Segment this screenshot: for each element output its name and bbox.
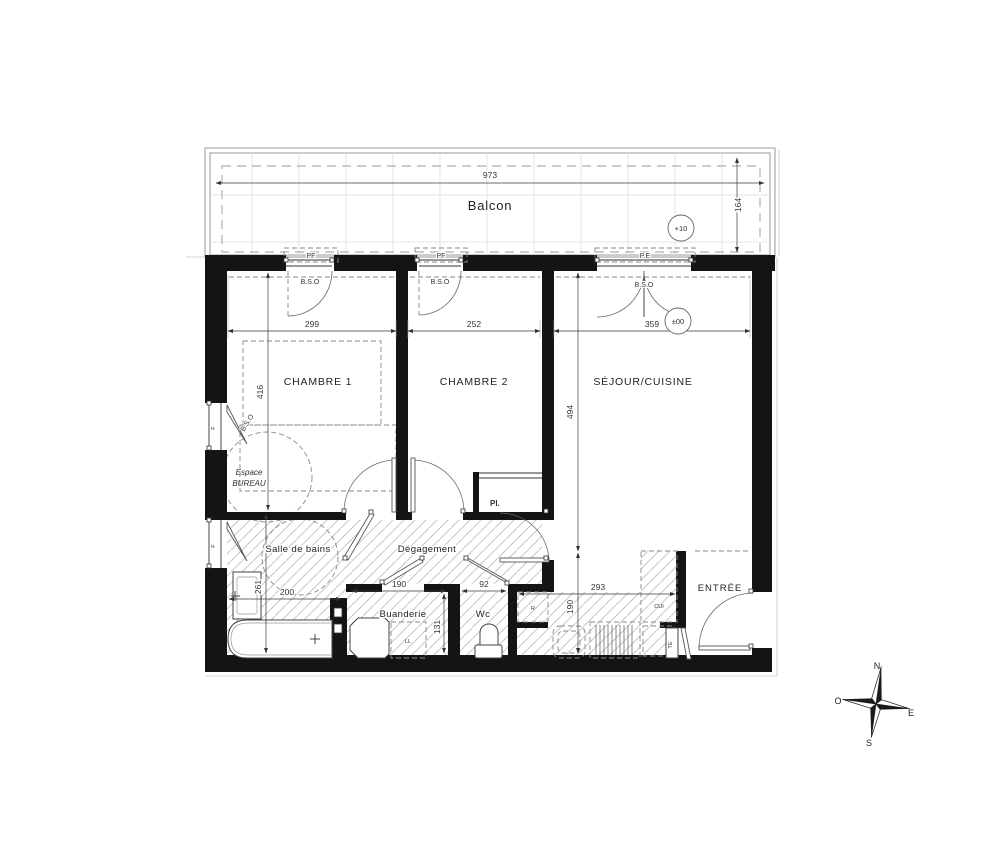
- dim-balcon-largeur: 973: [483, 170, 497, 180]
- degagement-label: Dégagement: [398, 544, 456, 555]
- floor-plan-svg: Balcon 973 164 +10 Espace BUREAU: [0, 0, 1000, 857]
- dim-cuisine-profondeur: 190: [565, 600, 575, 614]
- balcony: Balcon 973 164 +10: [186, 148, 779, 257]
- chambre2-label: CHAMBRE 2: [440, 376, 508, 388]
- wc-label: Wc: [476, 609, 491, 620]
- espace-bureau-circle: [222, 432, 312, 522]
- cuisine-meuble-label: CUI: [654, 604, 664, 610]
- dim-balcon-profondeur: 164: [733, 198, 743, 212]
- dim-sdb-largeur: 200: [280, 587, 294, 597]
- dim-buanderie-largeur: 190: [392, 579, 406, 589]
- compass-south-label: S: [866, 738, 872, 748]
- wall-ch1-ch2: [396, 271, 408, 512]
- level-balcony: +10: [675, 224, 688, 233]
- compass-rose-icon: N O E S: [834, 661, 914, 748]
- wall-cuisine-entree: [676, 551, 686, 622]
- buanderie-label: Buanderie: [380, 609, 427, 620]
- compass-east-label: E: [908, 708, 914, 718]
- compass-north-label: N: [874, 661, 881, 671]
- espace-bureau-label-1: Espace: [236, 468, 263, 477]
- dim-sdb-profondeur: 261: [253, 580, 263, 594]
- floor-plan-page: Balcon 973 164 +10 Espace BUREAU: [0, 0, 1000, 857]
- compass-west-label: O: [834, 696, 841, 706]
- wall-buanderie-wc: [448, 584, 460, 655]
- f2-label: F: [211, 544, 217, 548]
- dim-wc-largeur: 92: [479, 579, 489, 589]
- balcon-label: Balcon: [468, 198, 513, 213]
- closet-jamb: [473, 472, 479, 512]
- bso3-label: B.S.O: [635, 282, 654, 289]
- toilet-bowl: [480, 624, 498, 646]
- f1-label: F: [211, 426, 217, 430]
- te-label: TE: [668, 641, 674, 648]
- fridge-label: R: [531, 606, 535, 612]
- dim-sejour-profondeur: 494: [565, 405, 575, 419]
- wall-ch2-sejour: [542, 271, 554, 512]
- bso4-label: B.S.O: [240, 413, 256, 433]
- sejour-label: SÉJOUR/CUISINE: [593, 375, 692, 388]
- sdb-label: Salle de bains: [265, 544, 330, 555]
- dim-chambre1-profondeur: 416: [255, 385, 265, 399]
- kitchen-column-floor: [641, 551, 676, 592]
- dim-sejour-largeur: 359: [645, 319, 659, 329]
- entree-label: ENTRÉE: [698, 583, 743, 594]
- bso2-label: B.S.O: [431, 279, 450, 286]
- te-door-leaf: [681, 628, 691, 659]
- placard-label: Pl.: [490, 499, 500, 508]
- dim-cuisine-largeur: 293: [591, 582, 605, 592]
- water-heater: [350, 618, 389, 658]
- chambre1-label: CHAMBRE 1: [284, 376, 352, 388]
- pe-label: P.E: [640, 253, 651, 260]
- pf1-label: PF: [307, 253, 316, 260]
- pf2-label: PF: [437, 253, 446, 260]
- lave-linge-label: LL: [405, 639, 411, 645]
- dim-chambre2-largeur: 252: [467, 319, 481, 329]
- dim-chambre1-largeur: 299: [305, 319, 319, 329]
- dim-buanderie-profondeur: 131: [432, 620, 442, 634]
- espace-bureau-label-2: BUREAU: [232, 479, 266, 488]
- toilet-tank: [475, 645, 502, 658]
- level-interior: ±00: [672, 317, 684, 326]
- bso1-label: B.S.O: [301, 279, 320, 286]
